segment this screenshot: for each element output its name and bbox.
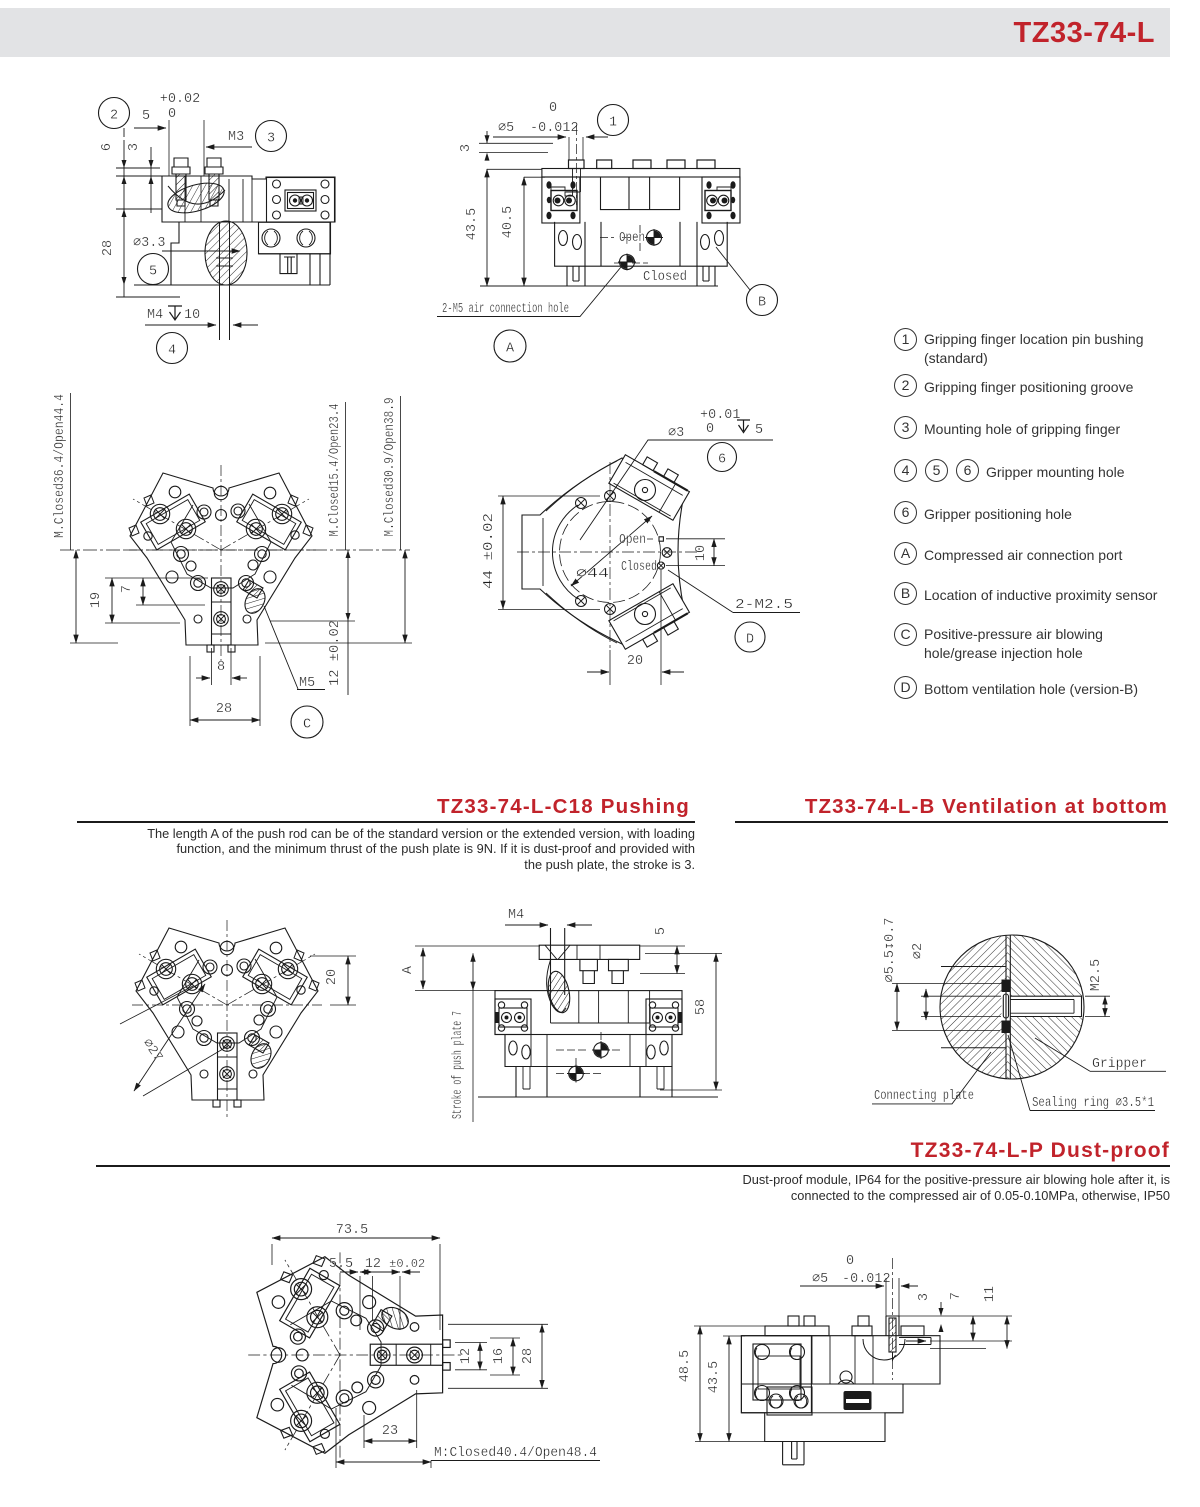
svg-text:5: 5 (755, 423, 763, 438)
svg-text:⌀27: ⌀27 (139, 1036, 165, 1065)
svg-text:0: 0 (706, 422, 714, 437)
svg-text:20: 20 (325, 969, 340, 985)
svg-text:2-M5 air connection hole: 2-M5 air connection hole (442, 302, 569, 317)
svg-text:M.Closed15.4/Open23.4: M.Closed15.4/Open23.4 (328, 404, 343, 537)
svg-text:Stroke of push plate 7: Stroke of push plate 7 (451, 1011, 466, 1119)
svg-text:28: 28 (101, 240, 116, 256)
svg-text:C: C (303, 718, 311, 733)
svg-text:5: 5 (149, 265, 157, 280)
svg-text:2-M2.5: 2-M2.5 (735, 598, 793, 613)
svg-text:A: A (506, 342, 515, 357)
svg-text:-0.012: -0.012 (530, 121, 579, 136)
svg-text:40.5: 40.5 (501, 206, 516, 238)
svg-text:3: 3 (267, 132, 275, 147)
svg-text:5.5: 5.5 (329, 1257, 353, 1272)
svg-text:8: 8 (217, 660, 225, 675)
svg-text:5: 5 (654, 927, 669, 935)
svg-text:73.5: 73.5 (336, 1223, 368, 1238)
svg-text:0: 0 (846, 1254, 854, 1269)
svg-text:12: 12 (459, 1348, 474, 1364)
svg-text:23: 23 (382, 1424, 398, 1439)
svg-text:4: 4 (168, 344, 176, 359)
svg-text:6: 6 (100, 143, 115, 151)
svg-text:M:Closed40.4/Open48.4: M:Closed40.4/Open48.4 (434, 1446, 597, 1461)
svg-text:Sealing ring ⌀3.5*1: Sealing ring ⌀3.5*1 (1032, 1096, 1154, 1111)
svg-text:12 ±0.02: 12 ±0.02 (328, 620, 343, 686)
svg-text:M3: M3 (228, 130, 244, 145)
svg-text:43.5: 43.5 (465, 208, 480, 240)
svg-text:12 ±0.02: 12 ±0.02 (365, 1257, 425, 1272)
svg-text:7: 7 (120, 585, 135, 593)
svg-text:Open: Open (619, 533, 646, 548)
svg-text:+0.01: +0.01 (700, 408, 741, 423)
svg-text:28: 28 (216, 702, 232, 717)
svg-text:5: 5 (142, 109, 150, 124)
svg-text:Open: Open (619, 231, 645, 246)
svg-text:M.Closed30.9/Open38.9: M.Closed30.9/Open38.9 (383, 398, 398, 537)
svg-text:M4: M4 (508, 908, 524, 923)
svg-text:7: 7 (949, 1292, 964, 1300)
svg-text:2: 2 (110, 109, 118, 124)
svg-text:10: 10 (184, 308, 200, 323)
svg-text:M.Closed36.4/Open44.4: M.Closed36.4/Open44.4 (53, 394, 68, 538)
svg-text:⌀5: ⌀5 (812, 1272, 828, 1287)
svg-text:A: A (401, 965, 416, 974)
svg-text:16: 16 (492, 1348, 507, 1364)
svg-text:43.5: 43.5 (707, 1361, 722, 1393)
svg-text:⌀2: ⌀2 (911, 943, 926, 959)
svg-text:1: 1 (609, 116, 617, 131)
svg-text:3: 3 (917, 1293, 932, 1301)
svg-text:⌀3.3: ⌀3.3 (133, 236, 165, 251)
svg-text:B: B (758, 296, 766, 311)
svg-text:20: 20 (627, 654, 643, 669)
svg-text:ROLK: ROLK (847, 1393, 865, 1400)
svg-text:M2.5: M2.5 (1089, 959, 1104, 991)
svg-text:Closed: Closed (643, 270, 687, 285)
svg-text:3: 3 (127, 143, 142, 151)
svg-text:⌀44: ⌀44 (576, 567, 609, 582)
svg-text:Closed: Closed (621, 560, 657, 575)
svg-text:⌀5.5↧0.7: ⌀5.5↧0.7 (883, 918, 898, 983)
svg-text:28: 28 (521, 1348, 536, 1364)
svg-text:3: 3 (459, 144, 474, 152)
svg-text:D: D (746, 633, 754, 648)
svg-text:19: 19 (89, 592, 104, 608)
svg-text:11: 11 (983, 1286, 998, 1302)
svg-text:⌀5: ⌀5 (498, 121, 514, 136)
svg-text:⌀3: ⌀3 (668, 426, 684, 441)
svg-text:58: 58 (694, 999, 709, 1015)
svg-text:M5: M5 (299, 676, 315, 691)
svg-text:0: 0 (168, 107, 176, 122)
svg-text:Connecting plate: Connecting plate (874, 1089, 974, 1104)
svg-text:M4: M4 (147, 308, 163, 323)
svg-text:Gripper: Gripper (1092, 1057, 1147, 1072)
svg-text:-0.012: -0.012 (842, 1272, 891, 1287)
svg-text:10: 10 (694, 545, 709, 561)
svg-text:0: 0 (549, 101, 557, 116)
svg-text:6: 6 (718, 453, 726, 468)
svg-text:+0.02: +0.02 (160, 92, 201, 107)
svg-text:48.5: 48.5 (678, 1350, 693, 1382)
svg-text:44 ±0.02: 44 ±0.02 (482, 513, 497, 589)
